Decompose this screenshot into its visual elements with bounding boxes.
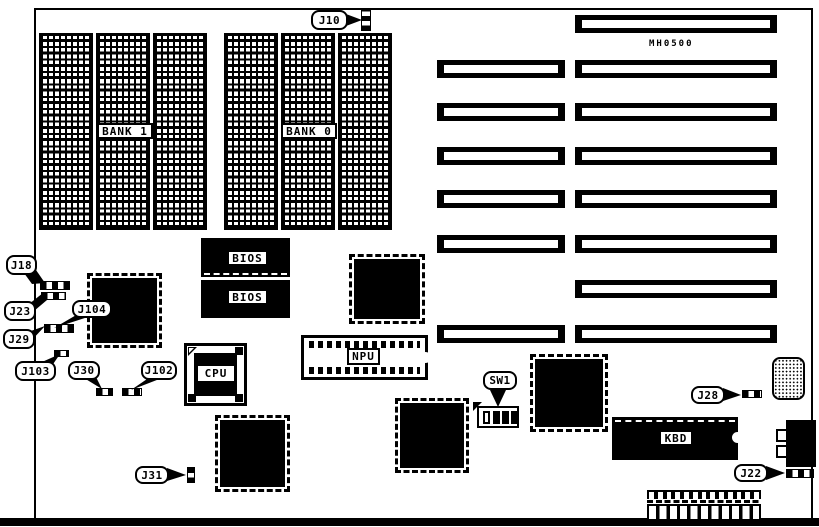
din-pin-box-1 [776, 429, 788, 442]
kbd-label: KBD [659, 430, 693, 446]
kbd-notch [732, 432, 743, 443]
expansion-slot-l4 [437, 190, 565, 208]
jumper-j18 [40, 281, 70, 290]
expansion-slot-r3 [575, 103, 777, 121]
jumper-j10 [361, 9, 371, 31]
expansion-slot-l5 [437, 235, 565, 253]
power-connector-tabs [647, 490, 761, 499]
cpu-label: CPU [197, 365, 235, 382]
motherboard-diagram: BANK 1 BANK 0 MH0500 BIOS BIOS NPU C [0, 0, 819, 527]
callout-j31: J31 [135, 466, 169, 484]
jumper-j103 [54, 350, 69, 357]
power-connector-cells [647, 504, 761, 521]
callout-j103: J103 [15, 361, 56, 381]
pointer-j22 [766, 466, 785, 480]
callout-j10: J10 [311, 10, 348, 30]
kbd-dashed-line [615, 420, 735, 422]
callout-j18: J18 [6, 255, 37, 275]
callout-j22: J22 [734, 464, 768, 482]
oscillator [772, 357, 805, 400]
expansion-slot-r4 [575, 147, 777, 165]
memory-column-bank1-3 [153, 33, 207, 230]
callout-j30: J30 [68, 361, 100, 380]
jumper-j29-j104 [44, 324, 74, 333]
expansion-slot-r1 [575, 15, 777, 33]
sw1-cell-4 [511, 411, 518, 424]
expansion-slot-r6 [575, 235, 777, 253]
bank1-label: BANK 1 [97, 123, 153, 139]
jumper-j28 [742, 390, 762, 398]
pointer-j28 [723, 388, 741, 401]
cpu-corner-block-tr [235, 347, 243, 355]
sw1-cell-2 [493, 411, 500, 424]
pointer-j31 [167, 468, 186, 481]
qfp-chip-right [535, 359, 603, 427]
cpu-corner-block-br [235, 394, 243, 402]
jumper-j31 [187, 467, 195, 483]
bios-label-1: BIOS [227, 250, 268, 266]
board-edge-top [34, 8, 813, 10]
expansion-slot-r5 [575, 190, 777, 208]
expansion-slot-r2 [575, 60, 777, 78]
callout-j104: J104 [72, 300, 112, 318]
din-pin-box-2 [776, 445, 788, 458]
sw1-cell-3 [502, 411, 509, 424]
memory-column-bank0-1 [224, 33, 278, 230]
sw1-dip-switch [477, 406, 519, 428]
npu-notch [420, 352, 431, 363]
npu-label: NPU [347, 348, 380, 365]
pointer-j10 [346, 14, 362, 26]
board-model-label: MH0500 [649, 39, 709, 51]
pointer-sw1 [490, 390, 506, 407]
jumper-j22 [786, 469, 814, 478]
power-connector-dashes [647, 500, 761, 503]
expansion-slot-r8 [575, 325, 777, 343]
jumper-j102 [122, 388, 142, 396]
expansion-slot-l6 [437, 325, 565, 343]
bios-chip-1-dashed-line [204, 273, 287, 275]
din-keyboard-connector [786, 420, 816, 467]
bank0-label: BANK 0 [281, 123, 337, 139]
expansion-slot-l3 [437, 147, 565, 165]
power-connector [647, 490, 761, 515]
memory-column-bank1-1 [39, 33, 93, 230]
sw1-cell-1 [483, 411, 490, 424]
expansion-slot-l1 [437, 60, 565, 78]
callout-sw1: SW1 [483, 371, 517, 390]
npu-pin-row-top [309, 341, 420, 348]
jumper-j23 [41, 292, 66, 300]
expansion-slot-l2 [437, 103, 565, 121]
cpu-corner-block-bl [188, 394, 196, 402]
bios-label-2: BIOS [227, 289, 268, 305]
qfp-chip-middle [400, 403, 464, 468]
callout-j23: J23 [4, 301, 36, 321]
jumper-j30 [96, 388, 113, 396]
callout-j102: J102 [141, 361, 177, 380]
qfp-chip-below-cpu [220, 420, 285, 487]
callout-j29: J29 [3, 329, 35, 349]
expansion-slot-r7 [575, 280, 777, 298]
memory-column-bank0-3 [338, 33, 392, 230]
npu-pin-row-bottom [309, 367, 420, 374]
qfp-chip-center-top [354, 259, 420, 319]
callout-j28: J28 [691, 386, 725, 404]
